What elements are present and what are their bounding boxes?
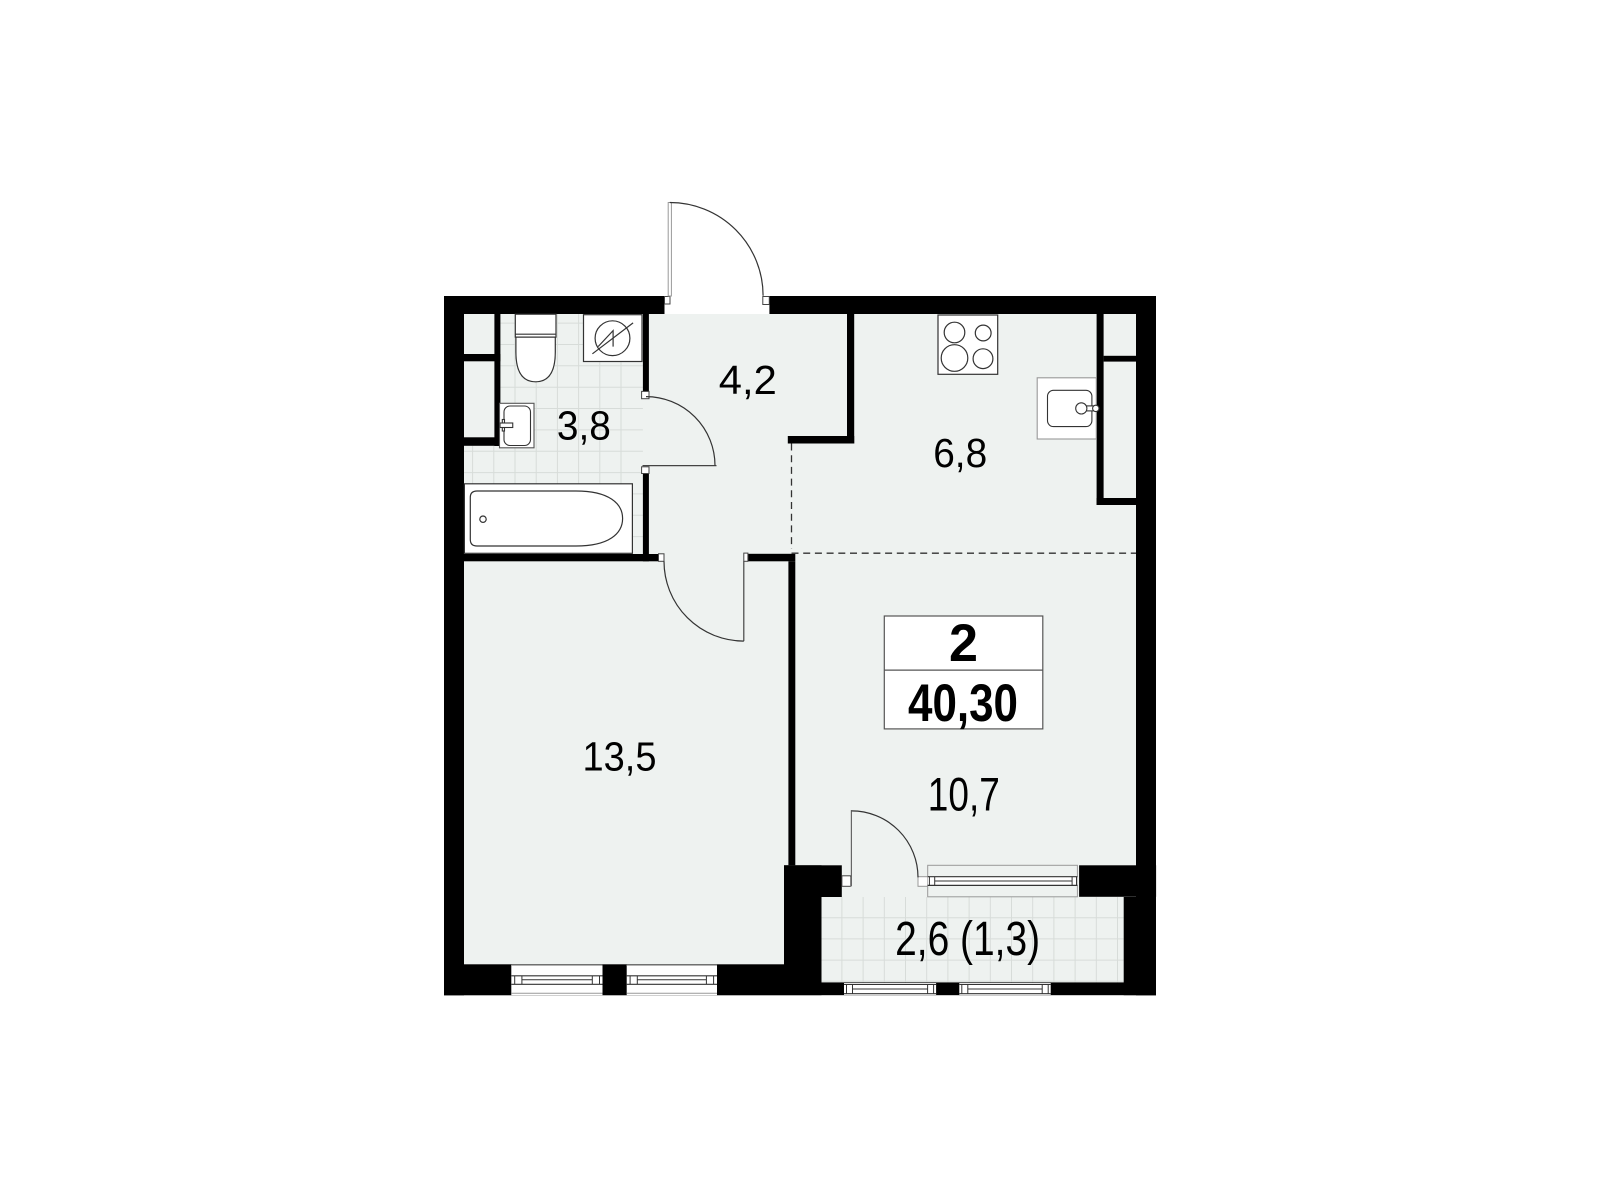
svg-text:4,2: 4,2 bbox=[719, 357, 777, 403]
svg-text:40,30: 40,30 bbox=[908, 674, 1018, 733]
svg-text:6,8: 6,8 bbox=[933, 430, 987, 476]
svg-text:2,6 (1,3): 2,6 (1,3) bbox=[895, 913, 1040, 966]
svg-text:13,5: 13,5 bbox=[583, 733, 657, 779]
svg-text:10,7: 10,7 bbox=[928, 768, 1000, 821]
svg-text:2: 2 bbox=[949, 614, 978, 673]
svg-text:3,8: 3,8 bbox=[557, 402, 611, 448]
